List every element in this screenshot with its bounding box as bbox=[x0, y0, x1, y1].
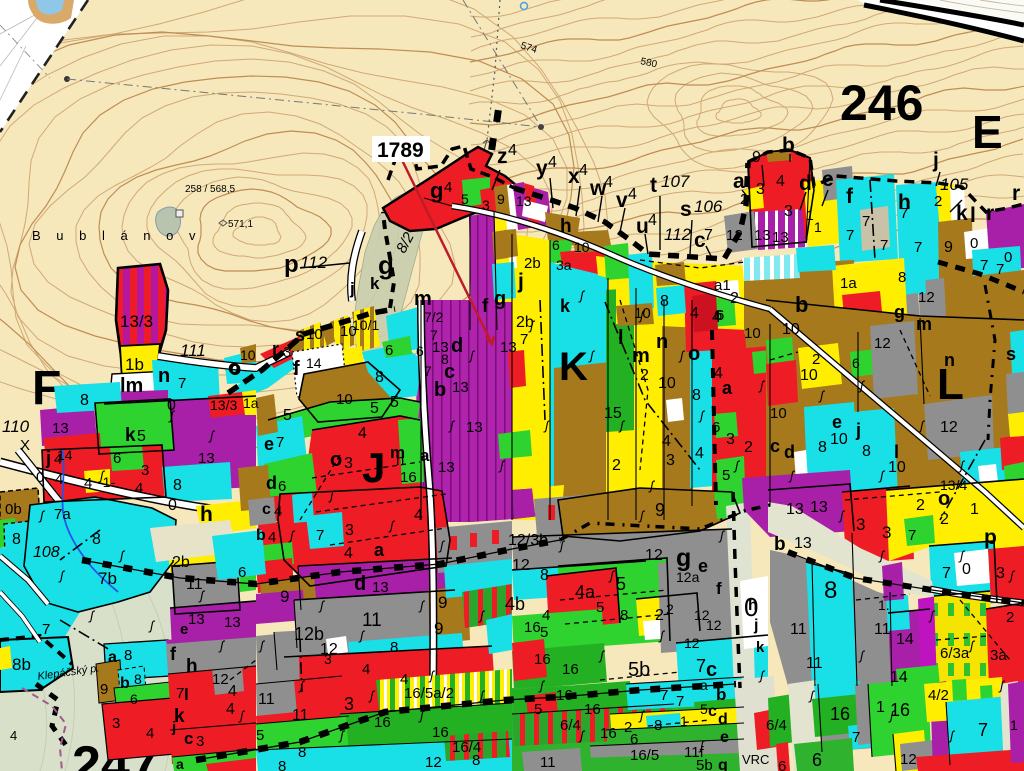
svg-text:2: 2 bbox=[916, 497, 925, 514]
svg-text:b: b bbox=[434, 379, 446, 401]
svg-text:b: b bbox=[716, 685, 726, 704]
svg-text:2: 2 bbox=[1006, 609, 1014, 626]
svg-text:8: 8 bbox=[375, 369, 384, 386]
svg-text:16/5a/2: 16/5a/2 bbox=[404, 685, 454, 702]
svg-text:a1: a1 bbox=[714, 277, 731, 294]
svg-text:l: l bbox=[618, 327, 624, 349]
svg-text:7: 7 bbox=[316, 527, 324, 544]
svg-text:5: 5 bbox=[461, 191, 469, 207]
svg-text:6: 6 bbox=[812, 750, 822, 770]
svg-text:4: 4 bbox=[362, 661, 370, 678]
svg-text:7: 7 bbox=[908, 527, 916, 544]
svg-text:p: p bbox=[284, 251, 299, 278]
svg-text:d: d bbox=[354, 573, 366, 595]
svg-text:13: 13 bbox=[438, 459, 455, 476]
svg-text:6: 6 bbox=[238, 564, 246, 581]
svg-text:6/4: 6/4 bbox=[560, 717, 581, 734]
svg-text:e: e bbox=[698, 556, 708, 576]
svg-text:o: o bbox=[688, 343, 700, 365]
svg-text:7: 7 bbox=[42, 621, 50, 638]
svg-text:K: K bbox=[559, 345, 588, 389]
svg-text:6/3a: 6/3a bbox=[940, 645, 970, 662]
svg-text:12: 12 bbox=[900, 751, 917, 768]
svg-text:8: 8 bbox=[660, 293, 669, 310]
svg-text:4: 4 bbox=[579, 162, 588, 179]
svg-text:4: 4 bbox=[54, 451, 62, 468]
svg-text:16: 16 bbox=[432, 724, 449, 741]
svg-text:12: 12 bbox=[726, 227, 743, 244]
svg-text:9: 9 bbox=[752, 149, 761, 166]
svg-text:r: r bbox=[1012, 182, 1020, 205]
svg-text:6: 6 bbox=[712, 419, 720, 436]
svg-text:c: c bbox=[184, 729, 193, 748]
svg-text:106: 106 bbox=[694, 197, 723, 216]
svg-text:d: d bbox=[718, 711, 728, 728]
svg-text:X: X bbox=[20, 437, 30, 454]
svg-text:5: 5 bbox=[390, 394, 399, 411]
svg-text:7: 7 bbox=[676, 693, 684, 710]
svg-text:n: n bbox=[158, 365, 170, 387]
svg-text:s: s bbox=[1006, 344, 1016, 364]
svg-text:a: a bbox=[733, 170, 745, 193]
svg-text:4: 4 bbox=[400, 671, 408, 688]
svg-text:0: 0 bbox=[167, 397, 176, 414]
svg-text:4: 4 bbox=[542, 607, 550, 624]
svg-text:4/2: 4/2 bbox=[928, 687, 949, 704]
svg-text:12: 12 bbox=[918, 289, 935, 306]
svg-text:4a: 4a bbox=[575, 582, 596, 602]
svg-text:k: k bbox=[756, 639, 765, 656]
svg-text:10: 10 bbox=[830, 431, 848, 448]
svg-text:8: 8 bbox=[298, 744, 306, 761]
svg-text:4: 4 bbox=[84, 475, 92, 492]
svg-text:16: 16 bbox=[374, 714, 391, 731]
svg-text:6: 6 bbox=[385, 342, 393, 359]
svg-text:112: 112 bbox=[664, 225, 692, 244]
svg-text:8b: 8b bbox=[12, 655, 31, 674]
svg-text:5b: 5b bbox=[628, 659, 650, 681]
svg-text:f: f bbox=[716, 579, 722, 598]
svg-text:6: 6 bbox=[416, 343, 424, 359]
svg-text:16/5: 16/5 bbox=[630, 747, 659, 764]
svg-text:d: d bbox=[266, 473, 277, 493]
svg-text:c: c bbox=[708, 703, 717, 720]
svg-text:10: 10 bbox=[782, 321, 800, 338]
svg-text:3a: 3a bbox=[556, 257, 572, 273]
svg-text:0: 0 bbox=[744, 592, 758, 622]
svg-text:j: j bbox=[349, 279, 355, 298]
svg-text:s: s bbox=[680, 198, 692, 221]
svg-text:12: 12 bbox=[940, 419, 958, 436]
svg-text:f: f bbox=[293, 358, 300, 380]
svg-text:11: 11 bbox=[362, 610, 382, 631]
svg-text:15: 15 bbox=[604, 405, 622, 422]
svg-text:12: 12 bbox=[684, 635, 700, 651]
svg-text:1: 1 bbox=[806, 207, 814, 223]
svg-text:6: 6 bbox=[852, 355, 860, 371]
svg-text:4: 4 bbox=[508, 142, 517, 159]
svg-text:2b: 2b bbox=[516, 314, 534, 331]
svg-text:1.: 1. bbox=[878, 597, 890, 613]
svg-text:9: 9 bbox=[944, 239, 953, 256]
svg-text:10: 10 bbox=[574, 239, 590, 255]
svg-text:10: 10 bbox=[240, 347, 256, 363]
svg-text:0: 0 bbox=[970, 235, 978, 252]
svg-text:11: 11 bbox=[292, 707, 309, 724]
svg-text:13: 13 bbox=[452, 379, 469, 396]
svg-text:107: 107 bbox=[661, 172, 690, 191]
svg-text:8: 8 bbox=[80, 392, 89, 409]
svg-text:16: 16 bbox=[556, 687, 573, 704]
svg-text:e: e bbox=[720, 729, 729, 746]
svg-text:3: 3 bbox=[666, 452, 675, 469]
svg-text:0: 0 bbox=[36, 469, 44, 486]
svg-text:7: 7 bbox=[914, 239, 922, 256]
svg-text:b: b bbox=[782, 134, 795, 157]
svg-text:a: a bbox=[176, 756, 184, 771]
svg-text:c: c bbox=[770, 436, 780, 456]
svg-text:b: b bbox=[256, 527, 266, 544]
svg-text:11: 11 bbox=[540, 754, 556, 771]
svg-text:4: 4 bbox=[274, 503, 282, 520]
svg-text:7: 7 bbox=[978, 720, 988, 740]
svg-text:7: 7 bbox=[900, 205, 908, 222]
svg-text:a: a bbox=[722, 378, 733, 398]
svg-text:g: g bbox=[494, 288, 506, 310]
svg-text:7: 7 bbox=[980, 257, 988, 274]
svg-text:5: 5 bbox=[370, 400, 379, 417]
svg-text:13: 13 bbox=[432, 339, 449, 356]
svg-text:8: 8 bbox=[654, 717, 662, 734]
svg-text:13: 13 bbox=[500, 339, 517, 356]
svg-text:7: 7 bbox=[942, 565, 951, 582]
svg-text:6: 6 bbox=[778, 758, 786, 771]
svg-text:10: 10 bbox=[306, 326, 323, 343]
svg-text:b: b bbox=[795, 292, 808, 317]
svg-text:3a: 3a bbox=[990, 647, 1007, 664]
svg-text:2b: 2b bbox=[524, 255, 541, 272]
svg-text:p: p bbox=[984, 526, 997, 549]
svg-text:5: 5 bbox=[722, 467, 730, 484]
svg-text:lm: lm bbox=[120, 375, 143, 397]
svg-text:e: e bbox=[180, 621, 188, 638]
svg-text:k: k bbox=[956, 202, 968, 225]
svg-text:4: 4 bbox=[548, 154, 557, 171]
svg-text:246: 246 bbox=[840, 75, 923, 131]
svg-text:4: 4 bbox=[662, 433, 671, 450]
svg-text:8: 8 bbox=[390, 639, 398, 656]
svg-text:16: 16 bbox=[890, 700, 910, 720]
svg-text:2: 2 bbox=[940, 511, 949, 528]
svg-text:j: j bbox=[45, 448, 51, 468]
svg-text:7: 7 bbox=[880, 237, 888, 254]
svg-text:6: 6 bbox=[630, 731, 638, 748]
svg-text:1: 1 bbox=[876, 699, 885, 716]
svg-text:5: 5 bbox=[283, 407, 292, 424]
svg-text:8: 8 bbox=[173, 477, 182, 494]
svg-text:2: 2 bbox=[655, 607, 664, 624]
svg-text:112: 112 bbox=[300, 253, 328, 272]
svg-text:4: 4 bbox=[358, 425, 367, 442]
svg-text:6: 6 bbox=[130, 691, 138, 707]
svg-text:3: 3 bbox=[726, 431, 735, 448]
svg-text:571,1: 571,1 bbox=[228, 219, 253, 230]
svg-text:m: m bbox=[414, 288, 432, 310]
svg-text:1: 1 bbox=[814, 219, 822, 235]
svg-text:14: 14 bbox=[896, 631, 914, 648]
svg-text:4: 4 bbox=[444, 179, 452, 196]
svg-text:12: 12 bbox=[512, 557, 530, 574]
svg-text:7: 7 bbox=[520, 331, 528, 348]
svg-text:o: o bbox=[228, 357, 240, 379]
svg-text:8: 8 bbox=[862, 443, 871, 460]
svg-text:10/1: 10/1 bbox=[352, 317, 379, 333]
svg-text:13: 13 bbox=[198, 450, 215, 467]
svg-text:13/3: 13/3 bbox=[120, 312, 153, 331]
svg-text:16: 16 bbox=[830, 704, 850, 724]
svg-text:13: 13 bbox=[224, 614, 241, 631]
svg-text:7: 7 bbox=[424, 363, 432, 379]
svg-text:s: s bbox=[295, 325, 305, 345]
svg-text:8: 8 bbox=[824, 577, 837, 604]
svg-text:f: f bbox=[170, 644, 177, 664]
svg-text:r: r bbox=[272, 339, 279, 359]
svg-text:7: 7 bbox=[846, 227, 854, 244]
svg-text:0b: 0b bbox=[5, 501, 22, 518]
svg-text:14: 14 bbox=[890, 669, 908, 686]
svg-text:12a: 12a bbox=[676, 569, 700, 585]
svg-text:9: 9 bbox=[434, 619, 443, 638]
svg-text:4: 4 bbox=[268, 529, 276, 546]
svg-text:4: 4 bbox=[344, 545, 353, 562]
svg-text:e: e bbox=[822, 168, 834, 191]
svg-text:2: 2 bbox=[812, 351, 820, 368]
svg-text:3: 3 bbox=[996, 565, 1005, 582]
svg-text:8: 8 bbox=[12, 531, 21, 548]
svg-text:10: 10 bbox=[658, 375, 676, 392]
svg-text:16: 16 bbox=[524, 619, 541, 636]
svg-text:1a: 1a bbox=[243, 395, 259, 411]
svg-text:m: m bbox=[916, 314, 932, 334]
svg-text:a: a bbox=[374, 540, 385, 560]
svg-text:c: c bbox=[262, 501, 271, 518]
svg-text:13: 13 bbox=[52, 420, 69, 437]
svg-text:12: 12 bbox=[425, 754, 442, 771]
svg-text:7: 7 bbox=[178, 375, 186, 392]
svg-text:2: 2 bbox=[744, 439, 753, 456]
svg-text:4: 4 bbox=[648, 212, 657, 229]
svg-text:258 / 568,5: 258 / 568,5 bbox=[185, 184, 235, 195]
svg-text:9: 9 bbox=[655, 500, 665, 520]
svg-text:14: 14 bbox=[306, 355, 322, 371]
svg-text:j: j bbox=[517, 270, 524, 293]
svg-text:5: 5 bbox=[596, 599, 604, 616]
svg-text:10: 10 bbox=[800, 367, 818, 384]
svg-text:4: 4 bbox=[414, 507, 423, 524]
svg-text:108: 108 bbox=[33, 544, 60, 561]
svg-text:b: b bbox=[774, 534, 786, 555]
svg-text:8: 8 bbox=[818, 439, 827, 456]
svg-text:7: 7 bbox=[660, 687, 668, 704]
svg-text:16: 16 bbox=[600, 725, 617, 742]
svg-text:3: 3 bbox=[482, 197, 490, 213]
svg-text:4: 4 bbox=[226, 701, 235, 718]
svg-text:3: 3 bbox=[344, 455, 353, 472]
svg-text:v: v bbox=[616, 189, 628, 212]
svg-text:4: 4 bbox=[55, 471, 63, 488]
svg-text:a: a bbox=[108, 649, 117, 666]
svg-text:k: k bbox=[560, 296, 571, 316]
svg-text:8: 8 bbox=[620, 607, 628, 624]
svg-text:1b: 1b bbox=[125, 355, 144, 374]
svg-text:z: z bbox=[497, 145, 508, 168]
svg-text:7/2: 7/2 bbox=[424, 309, 444, 325]
svg-text:0: 0 bbox=[168, 497, 177, 514]
svg-text:13: 13 bbox=[794, 535, 812, 552]
svg-text:h: h bbox=[200, 503, 213, 526]
svg-text:7: 7 bbox=[704, 227, 713, 244]
svg-text:9: 9 bbox=[438, 593, 447, 612]
svg-text:j: j bbox=[932, 149, 939, 172]
svg-text:8: 8 bbox=[898, 269, 906, 286]
svg-text:3: 3 bbox=[756, 181, 765, 198]
svg-text:8: 8 bbox=[472, 752, 480, 769]
svg-text:d: d bbox=[799, 172, 812, 195]
svg-text:10: 10 bbox=[336, 391, 353, 408]
svg-text:9: 9 bbox=[100, 681, 108, 698]
svg-text:g: g bbox=[718, 757, 728, 771]
svg-text:9: 9 bbox=[280, 587, 289, 606]
svg-text:8: 8 bbox=[278, 758, 286, 771]
svg-text:16: 16 bbox=[584, 701, 601, 718]
svg-text:7: 7 bbox=[696, 656, 706, 676]
svg-text:2: 2 bbox=[934, 193, 942, 210]
svg-text:7: 7 bbox=[862, 213, 870, 230]
svg-text:13: 13 bbox=[188, 611, 205, 628]
svg-text:7a: 7a bbox=[54, 506, 71, 523]
svg-text:5: 5 bbox=[534, 701, 542, 718]
svg-text:4: 4 bbox=[146, 725, 154, 742]
svg-text:3: 3 bbox=[784, 203, 793, 220]
svg-text:5: 5 bbox=[616, 574, 626, 594]
svg-text:12: 12 bbox=[212, 671, 229, 688]
svg-text:2: 2 bbox=[612, 457, 621, 474]
svg-text:2b: 2b bbox=[172, 554, 190, 571]
svg-text:n: n bbox=[656, 331, 668, 353]
svg-text:2: 2 bbox=[730, 290, 739, 307]
svg-text:6: 6 bbox=[552, 237, 560, 253]
svg-text:111: 111 bbox=[180, 341, 206, 360]
svg-text:13: 13 bbox=[786, 501, 804, 518]
svg-text:4: 4 bbox=[10, 728, 17, 743]
svg-text:7b: 7b bbox=[98, 569, 117, 588]
svg-text:0: 0 bbox=[962, 561, 971, 578]
svg-text:13/3: 13/3 bbox=[210, 397, 237, 413]
svg-text:g: g bbox=[676, 544, 691, 572]
svg-text:j: j bbox=[855, 420, 861, 440]
svg-text:3: 3 bbox=[882, 523, 891, 542]
svg-text:4b: 4b bbox=[505, 594, 525, 614]
svg-text:13: 13 bbox=[754, 227, 771, 244]
svg-text:r: r bbox=[986, 202, 994, 225]
svg-text:5b: 5b bbox=[696, 757, 713, 771]
svg-text:1: 1 bbox=[1010, 717, 1018, 733]
svg-text:105: 105 bbox=[940, 175, 969, 194]
svg-text:3: 3 bbox=[344, 694, 354, 714]
svg-text:11: 11 bbox=[258, 691, 275, 708]
svg-text:2: 2 bbox=[640, 367, 649, 384]
svg-text:b: b bbox=[120, 675, 130, 692]
svg-text:1789: 1789 bbox=[377, 139, 424, 162]
svg-text:h: h bbox=[560, 216, 572, 237]
svg-text:1: 1 bbox=[680, 713, 688, 729]
svg-text:8: 8 bbox=[134, 671, 142, 687]
svg-text:0: 0 bbox=[1004, 249, 1012, 266]
svg-text:2: 2 bbox=[666, 601, 674, 617]
svg-text:10: 10 bbox=[888, 459, 906, 476]
svg-text:13: 13 bbox=[516, 193, 532, 209]
svg-text:E: E bbox=[972, 106, 1003, 158]
svg-text:6: 6 bbox=[716, 307, 724, 324]
svg-text:e: e bbox=[832, 412, 842, 432]
svg-text:8: 8 bbox=[124, 647, 132, 664]
svg-text:8: 8 bbox=[92, 531, 101, 548]
svg-text:11: 11 bbox=[790, 621, 807, 638]
svg-text:16: 16 bbox=[534, 651, 551, 668]
svg-text:11: 11 bbox=[874, 621, 891, 638]
svg-text:4: 4 bbox=[776, 173, 785, 190]
svg-text:110: 110 bbox=[2, 417, 30, 436]
svg-text:12: 12 bbox=[645, 547, 663, 564]
svg-text:g: g bbox=[430, 178, 443, 203]
svg-text:y: y bbox=[536, 157, 548, 180]
svg-text:12: 12 bbox=[874, 335, 891, 352]
svg-text:6: 6 bbox=[113, 450, 121, 467]
svg-text:6: 6 bbox=[278, 478, 286, 495]
svg-text:3: 3 bbox=[141, 462, 149, 479]
svg-text:13: 13 bbox=[810, 499, 828, 516]
svg-text:10: 10 bbox=[634, 305, 651, 322]
svg-text:13: 13 bbox=[466, 419, 483, 436]
svg-text:u: u bbox=[636, 215, 649, 238]
svg-text:f: f bbox=[482, 296, 489, 317]
svg-text:3: 3 bbox=[196, 733, 204, 750]
svg-text:6/4: 6/4 bbox=[766, 717, 787, 734]
svg-text:5: 5 bbox=[700, 701, 708, 717]
svg-text:4: 4 bbox=[695, 445, 704, 462]
svg-text:k: k bbox=[370, 274, 380, 293]
svg-text:4: 4 bbox=[135, 480, 143, 497]
svg-text:3: 3 bbox=[324, 651, 332, 667]
svg-text:3: 3 bbox=[112, 715, 120, 732]
svg-text:4: 4 bbox=[690, 305, 699, 322]
svg-text:10: 10 bbox=[744, 325, 761, 342]
svg-text:n: n bbox=[396, 452, 404, 469]
svg-text:t: t bbox=[650, 174, 657, 197]
svg-text:o: o bbox=[938, 488, 950, 510]
svg-text:d: d bbox=[784, 442, 795, 462]
svg-text:2: 2 bbox=[740, 191, 748, 208]
svg-text:5: 5 bbox=[256, 727, 264, 744]
svg-text:3: 3 bbox=[283, 344, 291, 361]
svg-text:d: d bbox=[451, 335, 463, 357]
svg-text:1: 1 bbox=[970, 501, 979, 518]
svg-text:g: g bbox=[378, 250, 394, 280]
svg-text:g: g bbox=[894, 302, 905, 322]
svg-text:a: a bbox=[700, 677, 708, 693]
svg-text:B u b l á n o v: B u b l á n o v bbox=[32, 228, 202, 243]
svg-text:5: 5 bbox=[540, 624, 548, 641]
